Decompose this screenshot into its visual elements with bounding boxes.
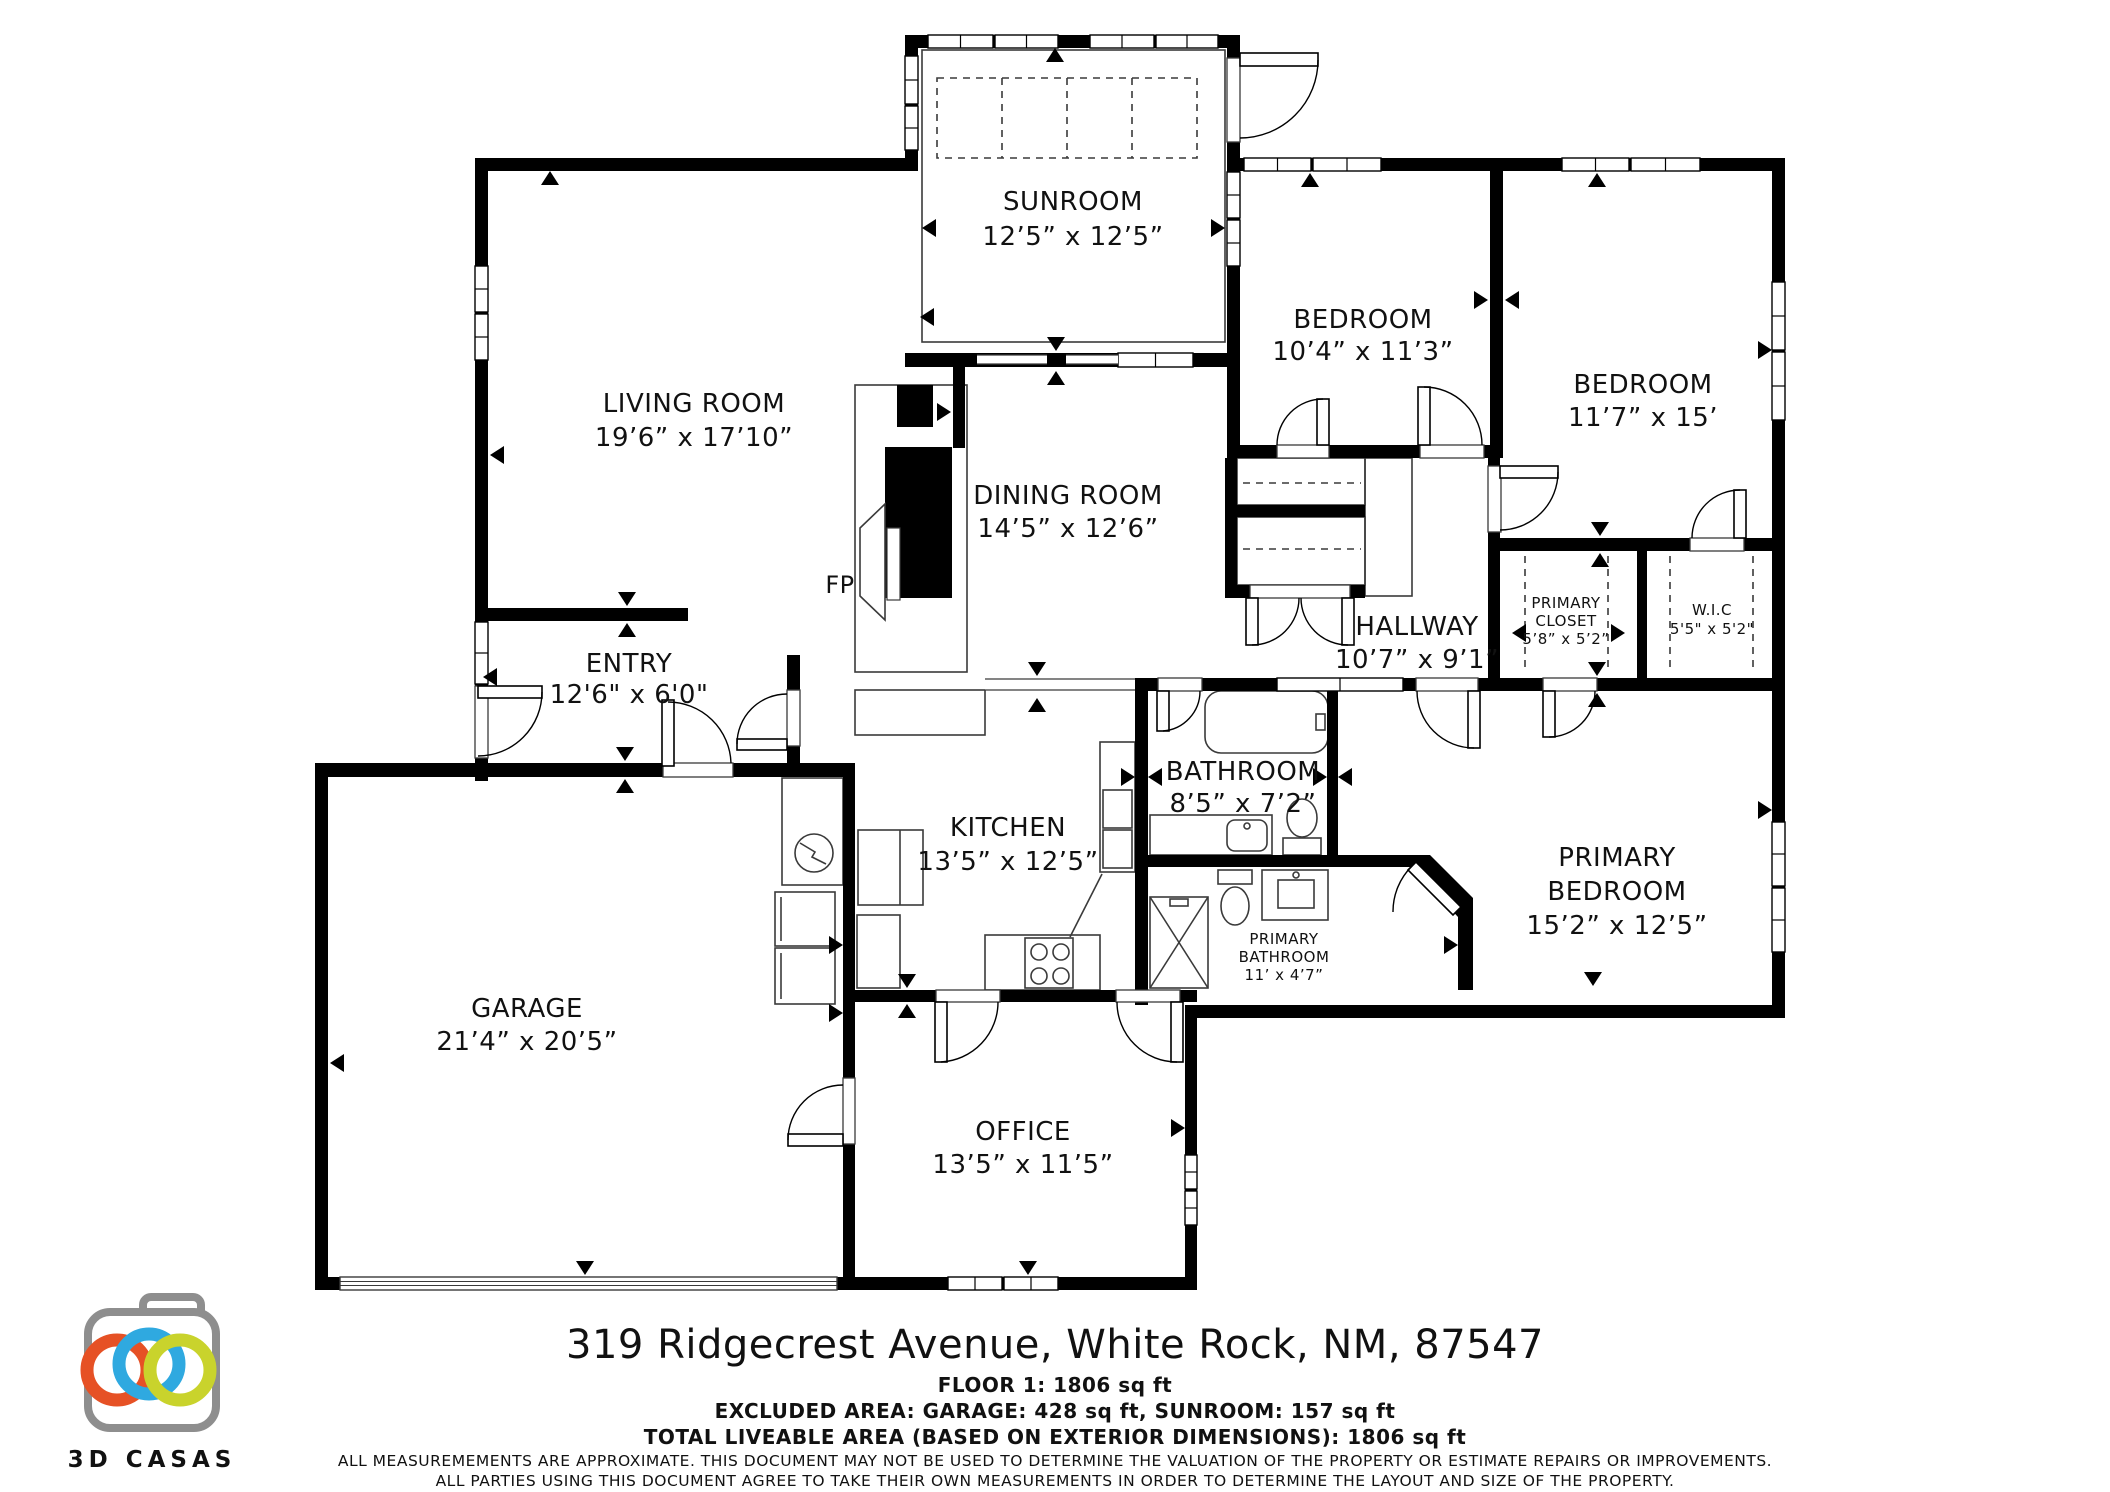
direction-marker-icon (616, 779, 634, 793)
room-label-garage: GARAGE (471, 994, 583, 1024)
kitchen-counter-right (1100, 742, 1135, 872)
footer-total-line: TOTAL LIVEABLE AREA (BASED ON EXTERIOR D… (644, 1425, 1467, 1449)
room-dims-primary-closet: 5’8” x 5’2” (1522, 630, 1609, 648)
direction-marker-icon (576, 1261, 594, 1275)
direction-marker-icon (1211, 219, 1225, 237)
wall (1327, 691, 1338, 867)
wall (1637, 551, 1647, 678)
room-label-primary-bathroom-1: PRIMARY (1249, 930, 1319, 948)
door-leaf (1317, 399, 1329, 445)
wall (843, 1143, 855, 1277)
wall (953, 353, 965, 448)
direction-marker-icon (829, 1004, 843, 1022)
room-dims-bedroom-right: 11’7” x 15’ (1568, 403, 1718, 433)
direction-marker-icon (1444, 936, 1458, 954)
primary-toilet (1218, 870, 1252, 925)
room-label-primary-bedroom-1: PRIMARY (1558, 843, 1675, 873)
room-label-entry: ENTRY (586, 649, 673, 679)
wall (1225, 458, 1237, 598)
room-label-bedroom-right: BEDROOM (1573, 370, 1712, 400)
door-swing (1240, 60, 1318, 138)
wall (1148, 855, 1415, 867)
direction-marker-icon (1758, 801, 1772, 819)
room-dims-primary-bedroom: 15’2” x 12’5” (1526, 911, 1707, 941)
door-swing (1117, 1002, 1177, 1062)
garage-door (340, 1277, 837, 1290)
wall (1490, 158, 1503, 458)
footer-floor-line: FLOOR 1: 1806 sq ft (938, 1373, 1173, 1397)
washer (775, 892, 835, 946)
door-swing (1277, 399, 1323, 445)
door-swing (1417, 691, 1474, 748)
wall (1197, 1005, 1785, 1018)
direction-marker-icon (1474, 291, 1488, 309)
wall (843, 763, 855, 1080)
door-leaf (478, 686, 542, 698)
direction-marker-icon (1588, 662, 1606, 676)
room-label-hallway: HALLWAY (1355, 612, 1478, 642)
logo-brand-text: 3D CASAS (68, 1447, 237, 1473)
floorplan-page: SUNROOM 12’5” x 12’5” LIVING ROOM 19’6” … (0, 0, 2110, 1492)
door-frame (1250, 585, 1350, 598)
direction-marker-icon (1148, 768, 1162, 786)
direction-marker-icon (1505, 291, 1519, 309)
door-frame (1277, 445, 1329, 458)
floorplan-canvas: SUNROOM 12’5” x 12’5” LIVING ROOM 19’6” … (0, 0, 2110, 1492)
direction-marker-icon (1301, 173, 1319, 187)
hall-closet-upper (1237, 458, 1365, 505)
room-dims-garage: 21’4” x 20’5” (436, 1027, 617, 1057)
door-leaf (1468, 691, 1480, 748)
door-leaf (1342, 598, 1354, 645)
room-dims-bathroom: 8’5” x 7’2” (1169, 789, 1316, 819)
kitchen-counter-left (857, 915, 900, 988)
room-dims-wic: 5'5" x 5'2" (1670, 620, 1754, 638)
door-frame (1420, 445, 1484, 458)
wall (1135, 678, 1148, 1005)
bathroom-vanity (1150, 815, 1272, 855)
wall (1458, 917, 1473, 990)
wall (1488, 678, 1785, 691)
wall (475, 158, 918, 171)
room-dims-hallway: 10’7” x 9’1” (1335, 645, 1499, 675)
direction-marker-icon (618, 592, 636, 606)
fridge (858, 830, 923, 905)
wall (1185, 1005, 1197, 1290)
room-label-dining-room: DINING ROOM (973, 481, 1163, 511)
direction-marker-icon (1584, 972, 1602, 986)
door-swing (668, 702, 731, 763)
room-dims-sunroom: 12’5” x 12’5” (982, 222, 1163, 252)
bathtub (1205, 691, 1328, 753)
door-swing (737, 694, 787, 744)
stove (1025, 938, 1073, 988)
shower (1150, 897, 1208, 988)
footer-disclaimer-1: ALL MEASUREMEMENTS ARE APPROXIMATE. THIS… (338, 1452, 1772, 1470)
direction-marker-icon (937, 403, 951, 421)
door-swing (1252, 598, 1299, 645)
direction-marker-icon (1028, 662, 1046, 676)
dryer (775, 948, 835, 1004)
door-leaf (1171, 1002, 1183, 1062)
door-frame (1116, 990, 1180, 1002)
opening-sill (985, 679, 1135, 690)
direction-marker-icon (1758, 341, 1772, 359)
direction-marker-icon (1588, 693, 1606, 707)
door-leaf (1240, 53, 1318, 66)
door-swing (1692, 490, 1740, 538)
door-swing (941, 1002, 998, 1062)
room-label-office: OFFICE (975, 1117, 1071, 1147)
door-swing (1393, 866, 1412, 912)
primary-vanity (1262, 870, 1328, 920)
door-swing (1301, 598, 1348, 645)
door-frame (787, 690, 800, 746)
door-leaf (1500, 466, 1558, 478)
kitchen-counter-top (855, 690, 985, 735)
fireplace-label: FP (825, 571, 854, 599)
footer-excluded-line: EXCLUDED AREA: GARAGE: 428 sq ft, SUNROO… (715, 1399, 1396, 1423)
hall-chase (1365, 458, 1412, 596)
wall (478, 608, 688, 621)
room-label-sunroom: SUNROOM (1003, 187, 1143, 217)
door-frame (1488, 466, 1501, 532)
room-dims-dining-room: 14’5” x 12’6” (977, 514, 1158, 544)
room-label-primary-bedroom-2: BEDROOM (1547, 877, 1686, 907)
direction-marker-icon (616, 747, 634, 761)
water-heater (795, 834, 833, 872)
kitchen-counter-bottom (985, 935, 1100, 990)
logo: 3D CASAS (68, 1297, 237, 1473)
direction-marker-icon (1171, 1119, 1185, 1137)
direction-marker-icon (1611, 624, 1625, 642)
door-swing (1500, 472, 1558, 530)
direction-marker-icon (1338, 768, 1352, 786)
door-frame (1158, 678, 1202, 691)
direction-marker-icon (1591, 522, 1609, 536)
door-leaf (737, 739, 787, 750)
room-label-living-room: LIVING ROOM (603, 389, 785, 419)
room-dims-entry: 12'6" x 6'0" (550, 680, 709, 710)
direction-marker-icon (1028, 698, 1046, 712)
direction-marker-icon (829, 936, 843, 954)
footer-address: 319 Ridgecrest Avenue, White Rock, NM, 8… (566, 1322, 1544, 1368)
fireplace (860, 385, 952, 620)
door-swing (1424, 387, 1482, 445)
room-dims-office: 13’5” x 11’5” (932, 1150, 1113, 1180)
door-leaf (1157, 691, 1169, 731)
room-dims-living-room: 19’6” x 17’10” (595, 423, 793, 453)
room-dims-bedroom-top: 10’4” x 11’3” (1272, 337, 1453, 367)
direction-marker-icon (1047, 371, 1065, 385)
opening-sill (1066, 355, 1118, 364)
direction-marker-icon (490, 446, 504, 464)
room-label-primary-closet-2: CLOSET (1535, 612, 1597, 630)
direction-marker-icon (1591, 553, 1609, 567)
hall-closet-lower (1237, 517, 1365, 585)
utility-alcove (782, 778, 843, 885)
direction-marker-icon (1588, 173, 1606, 187)
direction-marker-icon (330, 1054, 344, 1072)
direction-marker-icon (618, 623, 636, 637)
direction-marker-icon (898, 1004, 916, 1018)
room-dims-primary-bathroom: 11’ x 4’7” (1245, 966, 1324, 984)
door-leaf (1734, 490, 1746, 538)
direction-marker-icon (922, 219, 936, 237)
wall (315, 763, 478, 777)
door-leaf (1418, 387, 1430, 445)
room-label-bedroom-top: BEDROOM (1293, 305, 1432, 335)
door-frame (1416, 678, 1478, 691)
room-label-primary-closet-1: PRIMARY (1531, 594, 1601, 612)
door-swing (788, 1085, 843, 1140)
direction-marker-icon (1019, 1261, 1037, 1275)
door-leaf (935, 1002, 947, 1062)
sunroom-dashed-storage (937, 78, 1197, 158)
room-label-kitchen: KITCHEN (950, 813, 1066, 843)
door-leaf (1543, 691, 1555, 737)
opening-sill (977, 355, 1047, 364)
door-frame (936, 990, 1000, 1002)
room-dims-kitchen: 13’5” x 12’5” (917, 847, 1098, 877)
door-leaf (788, 1134, 843, 1146)
door-frame (843, 1078, 855, 1144)
door-leaf (1246, 598, 1258, 645)
direction-marker-icon (541, 171, 559, 185)
wall (315, 763, 328, 1290)
room-label-wic: W.I.C (1692, 601, 1732, 619)
kitchen-counter-diagonal (1070, 874, 1102, 937)
wall (1225, 505, 1365, 517)
room-label-bathroom: BATHROOM (1166, 757, 1320, 787)
door-frame (1690, 538, 1744, 551)
door-frame (1543, 678, 1597, 691)
door-swing (1549, 691, 1595, 737)
door-frame (1227, 58, 1240, 142)
room-label-primary-bathroom-2: BATHROOM (1239, 948, 1330, 966)
kitchen-sink-lower (1103, 830, 1132, 868)
footer: 319 Ridgecrest Avenue, White Rock, NM, 8… (338, 1322, 1772, 1490)
footer-disclaimer-2: ALL PARTIES USING THIS DOCUMENT AGREE TO… (436, 1472, 1675, 1490)
kitchen-sink-upper (1103, 790, 1132, 828)
direction-marker-icon (1121, 768, 1135, 786)
wall (1227, 345, 1240, 458)
direction-marker-icon (1047, 337, 1065, 351)
hearth (860, 504, 885, 620)
